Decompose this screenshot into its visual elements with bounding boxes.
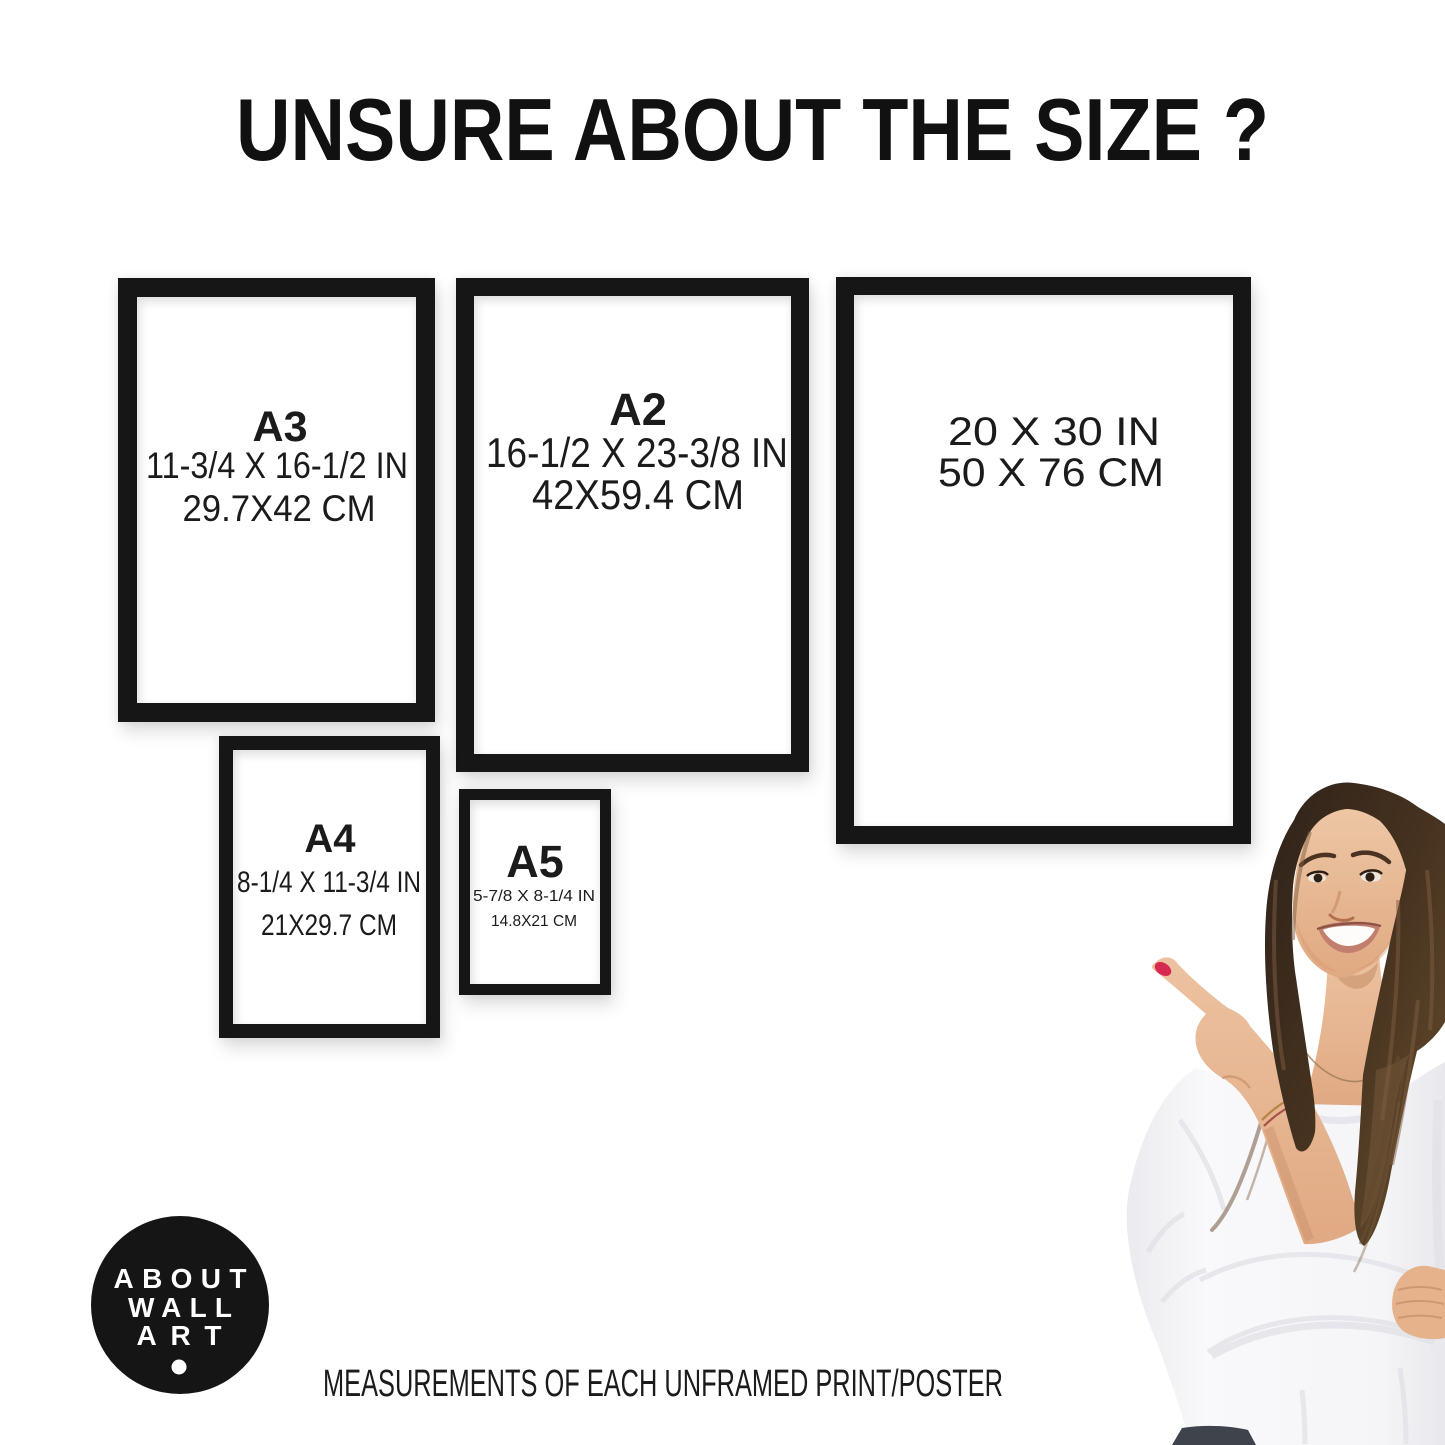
svg-text:21X29.7 CM: 21X29.7 CM [261, 909, 397, 942]
svg-text:A3: A3 [253, 403, 308, 451]
svg-text:50 X 76 CM: 50 X 76 CM [938, 451, 1164, 495]
svg-text:42X59.4 CM: 42X59.4 CM [532, 471, 744, 518]
svg-text:20 X 30 IN: 20 X 30 IN [948, 410, 1160, 454]
svg-text:5-7/8 X 8-1/4 IN: 5-7/8 X 8-1/4 IN [473, 888, 595, 905]
svg-text:A4: A4 [304, 817, 356, 861]
svg-text:16-1/2 X 23-3/8 IN: 16-1/2 X 23-3/8 IN [486, 429, 788, 476]
svg-text:11-3/4 X 16-1/2 IN: 11-3/4 X 16-1/2 IN [146, 445, 408, 486]
svg-text:8-1/4 X 11-3/4 IN: 8-1/4 X 11-3/4 IN [237, 866, 421, 899]
svg-text:29.7X42 CM: 29.7X42 CM [183, 488, 376, 529]
svg-text:WALL: WALL [128, 1292, 232, 1323]
svg-text:14.8X21 CM: 14.8X21 CM [491, 913, 577, 930]
svg-text:A2: A2 [609, 384, 667, 435]
svg-text:UNSURE ABOUT THE SIZE ?: UNSURE ABOUT THE SIZE ? [236, 80, 1269, 179]
svg-text:A5: A5 [506, 836, 564, 887]
svg-text:ART: ART [137, 1320, 222, 1351]
svg-text:MEASUREMENTS OF EACH UNFRAMED: MEASUREMENTS OF EACH UNFRAMED PRINT/POST… [323, 1363, 1003, 1405]
